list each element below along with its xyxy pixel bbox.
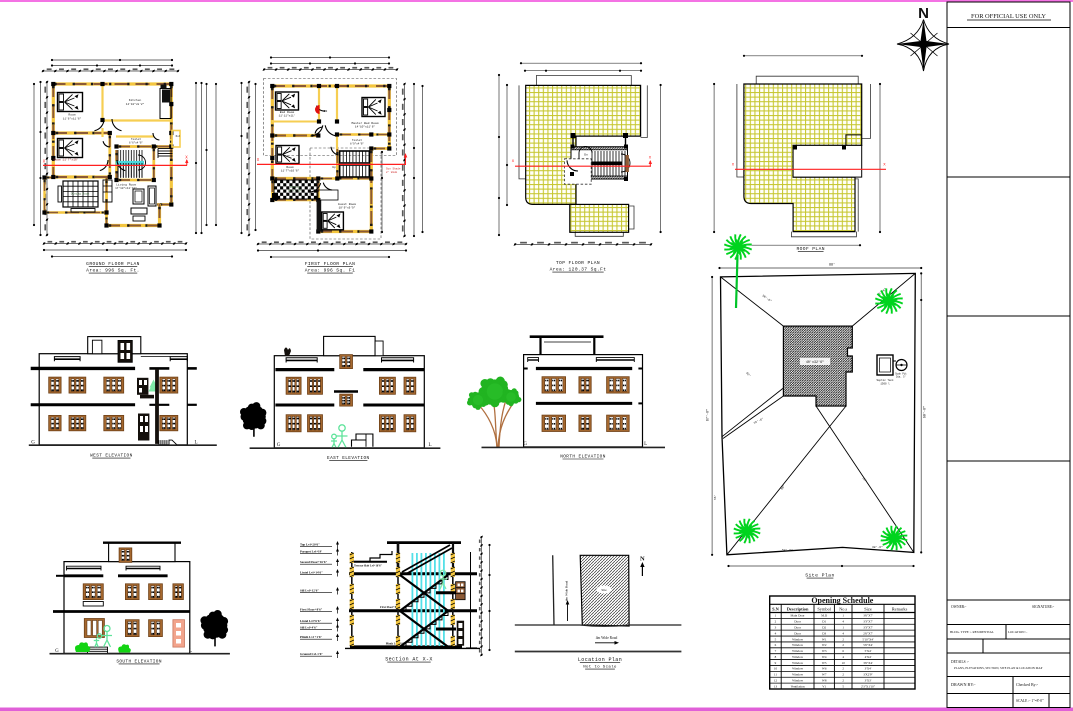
svg-text:N: N: [918, 5, 929, 22]
svg-text:LOCATION :-: LOCATION :-: [1008, 630, 1027, 634]
svg-text:Window: Window: [792, 673, 804, 677]
svg-text:10'9"x9'9": 10'9"x9'9": [339, 206, 356, 210]
svg-text:11'7"x10'6": 11'7"x10'6": [281, 169, 300, 173]
svg-text:Window: Window: [792, 661, 804, 665]
svg-text:Window: Window: [792, 649, 804, 653]
svg-text:Opening Schedule: Opening Schedule: [811, 596, 873, 605]
svg-text:L: L: [428, 443, 431, 448]
svg-text:No.s: No.s: [839, 606, 847, 611]
svg-text:Room: Room: [68, 114, 75, 117]
svg-text:Lintel Lvl+14'6": Lintel Lvl+14'6": [300, 571, 323, 575]
svg-text:Top Lvl+20'6": Top Lvl+20'6": [300, 543, 320, 547]
svg-text:N: N: [640, 556, 645, 563]
svg-text:Living Room: Living Room: [116, 183, 136, 187]
svg-text:G: G: [277, 443, 281, 448]
svg-text:2'6"X7': 2'6"X7': [863, 631, 873, 635]
svg-text:W7: W7: [822, 673, 827, 677]
svg-text:Area: 996 Sq. F1: Area: 996 Sq. F1: [305, 268, 356, 274]
svg-text:Area: 996 Sq. Ft.: Area: 996 Sq. Ft.: [86, 268, 140, 274]
svg-text:W1: W1: [822, 637, 827, 641]
svg-text:Area: 120.37 Sq.Ft: Area: 120.37 Sq.Ft: [550, 267, 607, 273]
svg-text:Site Plan: Site Plan: [805, 573, 835, 579]
svg-text:W5: W5: [822, 661, 827, 665]
svg-text:DRAWN BY:-: DRAWN BY:-: [951, 682, 976, 687]
svg-text:3'X2'9": 3'X2'9": [863, 673, 873, 677]
svg-text:13: 13: [774, 684, 778, 688]
svg-text:14'10"x8'2": 14'10"x8'2": [126, 102, 145, 106]
svg-text:Ground Lvl-1'6": Ground Lvl-1'6": [300, 652, 323, 656]
svg-text:W6: W6: [822, 667, 827, 671]
svg-text:3'6"X4': 3'6"X4': [863, 661, 873, 665]
svg-text:Dn: Dn: [584, 154, 588, 157]
svg-text:Dia. 5': Dia. 5': [896, 376, 906, 379]
svg-text:Second Floor+16'6": Second Floor+16'6": [300, 560, 327, 564]
svg-text:12: 12: [774, 678, 778, 682]
svg-text:FIRST FLOOR PLAN: FIRST FLOOR PLAN: [305, 261, 356, 267]
svg-text:Door: Door: [794, 620, 801, 624]
svg-text:Description: Description: [787, 606, 809, 611]
svg-text:ROOF PLAN: ROOF PLAN: [796, 246, 824, 252]
svg-text:SIGNATURE:-: SIGNATURE:-: [1032, 605, 1055, 609]
svg-text:GROUND FLOOR PLAN: GROUND FLOOR PLAN: [86, 261, 140, 267]
svg-text:2' Wide: 2' Wide: [386, 170, 398, 174]
svg-text:10: 10: [774, 667, 778, 671]
svg-text:4m Wide Road: 4m Wide Road: [596, 636, 618, 640]
svg-text:Door: Door: [794, 626, 801, 630]
svg-text:Remarks: Remarks: [892, 606, 908, 611]
svg-text:6'6"x4'6": 6'6"x4'6": [129, 141, 143, 145]
svg-text:L: L: [644, 442, 647, 447]
svg-text:G: G: [55, 649, 59, 654]
svg-text:Out: Out: [176, 135, 181, 138]
svg-text:87'-6": 87'-6": [706, 409, 711, 421]
svg-text:17'10"x11'10": 17'10"x11'10": [115, 186, 137, 190]
svg-text:Window: Window: [792, 667, 804, 671]
svg-text:3'3"X7': 3'3"X7': [863, 626, 873, 630]
svg-text:EAST ELEVATION: EAST ELEVATION: [327, 456, 370, 461]
svg-text:Bed Room: Bed Room: [280, 110, 295, 114]
svg-text:D3: D3: [324, 110, 328, 113]
svg-text:3'6"X7': 3'6"X7': [863, 614, 873, 618]
svg-text:Door: Door: [794, 631, 801, 635]
svg-text:Window: Window: [792, 637, 804, 641]
svg-text:11'11"x11': 11'11"x11': [279, 114, 296, 118]
svg-text:10: 10: [842, 661, 846, 665]
svg-text:D2: D2: [822, 626, 826, 630]
svg-text:Septic Tank: Septic Tank: [876, 378, 894, 382]
svg-text:W2: W2: [822, 643, 827, 647]
svg-text:L: L: [194, 441, 197, 446]
svg-text:11'6"x11'6": 11'6"x11'6": [63, 117, 82, 121]
svg-text:DETAILS :-: DETAILS :-: [951, 660, 970, 664]
svg-text:First Floor+8'6": First Floor+8'6": [300, 608, 323, 612]
svg-text:Plinth Lvl +1'6": Plinth Lvl +1'6": [300, 635, 322, 639]
svg-text:W4: W4: [822, 655, 827, 659]
svg-text:40'x32'6": 40'x32'6": [806, 360, 824, 365]
svg-text:M.D: M.D: [821, 614, 828, 618]
svg-text:8'9"x4'6": 8'9"x4'6": [350, 142, 364, 146]
svg-text:W3: W3: [822, 649, 827, 653]
svg-text:Main Door: Main Door: [791, 614, 806, 618]
svg-text:90'-6": 90'-6": [923, 406, 928, 418]
svg-text:SOUTH ELEVATION: SOUTH ELEVATION: [116, 659, 162, 664]
svg-text:FOR OFFICIAL USE ONLY: FOR OFFICIAL USE ONLY: [971, 13, 1046, 20]
svg-text:3'3"X7': 3'3"X7': [863, 620, 873, 624]
svg-text:Size: Size: [864, 606, 872, 611]
svg-text:1500 l: 1500 l: [880, 382, 890, 386]
svg-text:Window: Window: [792, 678, 804, 682]
svg-text:2'3"X1'10": 2'3"X1'10": [861, 684, 876, 688]
svg-text:10'x7'10": 10'x7'10": [288, 189, 302, 193]
svg-text:Parapet Lvl+19': Parapet Lvl+19': [300, 550, 322, 554]
svg-text:Symbol: Symbol: [817, 606, 831, 611]
svg-text:3'X4': 3'X4': [865, 667, 872, 671]
svg-text:Ventilation: Ventilation: [791, 684, 805, 688]
svg-text:58'-6": 58'-6": [782, 548, 793, 552]
svg-text:Location Plan: Location Plan: [578, 657, 622, 663]
svg-text:D1: D1: [822, 620, 826, 624]
svg-text:Dining: Dining: [290, 185, 300, 189]
svg-text:4m Wide Road: 4m Wide Road: [565, 581, 569, 602]
svg-text:3'X3': 3'X3': [865, 678, 872, 682]
svg-text:S.N: S.N: [772, 606, 780, 611]
svg-text:Site: Site: [601, 588, 607, 592]
svg-text:V1: V1: [822, 684, 826, 688]
svg-text:5'X4': 5'X4': [865, 649, 872, 653]
svg-text:56': 56': [713, 494, 717, 500]
svg-text:Room 11'7"x10': Room 11'7"x10': [53, 158, 78, 162]
svg-text:11: 11: [774, 673, 777, 677]
svg-text:4'X4': 4'X4': [865, 655, 872, 659]
svg-text:W8: W8: [822, 678, 827, 682]
svg-text:Section At X-X: Section At X-X: [385, 657, 433, 663]
svg-text:L: L: [189, 649, 192, 654]
svg-text:38'-6": 38'-6": [872, 545, 883, 549]
svg-text:5'6"X4': 5'6"X4': [863, 643, 873, 647]
svg-text:Kitchen: Kitchen: [129, 98, 142, 102]
svg-text:Window: Window: [792, 655, 804, 659]
svg-text:Dining Room: Dining Room: [71, 192, 90, 196]
svg-text:Sun Shade: Sun Shade: [386, 167, 401, 171]
svg-text:88': 88': [829, 263, 835, 268]
svg-text:Sill Lvl+12'6": Sill Lvl+12'6": [300, 589, 319, 593]
svg-text:Master Bed Room: Master Bed Room: [351, 121, 378, 125]
svg-text:Terrace Slab Lvl+16'6": Terrace Slab Lvl+16'6": [354, 565, 383, 568]
svg-text:SCALE :- 1"=8'-0": SCALE :- 1"=8'-0": [1016, 699, 1044, 703]
svg-text:Checked By:-: Checked By:-: [1016, 682, 1039, 687]
svg-text:14'10"x11'6": 14'10"x11'6": [355, 125, 375, 129]
svg-text:Up: Up: [332, 166, 336, 169]
svg-text:Not to Scale: Not to Scale: [583, 665, 617, 670]
svg-text:5'10"X4': 5'10"X4': [862, 637, 874, 641]
svg-text:OWNER:-: OWNER:-: [951, 605, 967, 609]
svg-text:BLDG. TYPE :- RESIDENTIAL: BLDG. TYPE :- RESIDENTIAL: [950, 630, 994, 634]
svg-text:Lintel Lvl+6'6": Lintel Lvl+6'6": [300, 619, 321, 623]
svg-text:Toilet: Toilet: [131, 137, 141, 141]
svg-text:Sill Lvl+4'6": Sill Lvl+4'6": [300, 626, 318, 630]
svg-text:Toilet: Toilet: [352, 138, 362, 142]
svg-text:WEST ELEVATION: WEST ELEVATION: [90, 454, 133, 459]
svg-text:G: G: [523, 442, 527, 447]
svg-text:Window: Window: [792, 643, 804, 647]
svg-text:D3: D3: [822, 631, 826, 635]
svg-text:NORTH ELEVATION: NORTH ELEVATION: [560, 454, 606, 459]
svg-text:TOP FLOOR PLAN: TOP FLOOR PLAN: [556, 260, 600, 266]
svg-text:G: G: [31, 441, 35, 446]
